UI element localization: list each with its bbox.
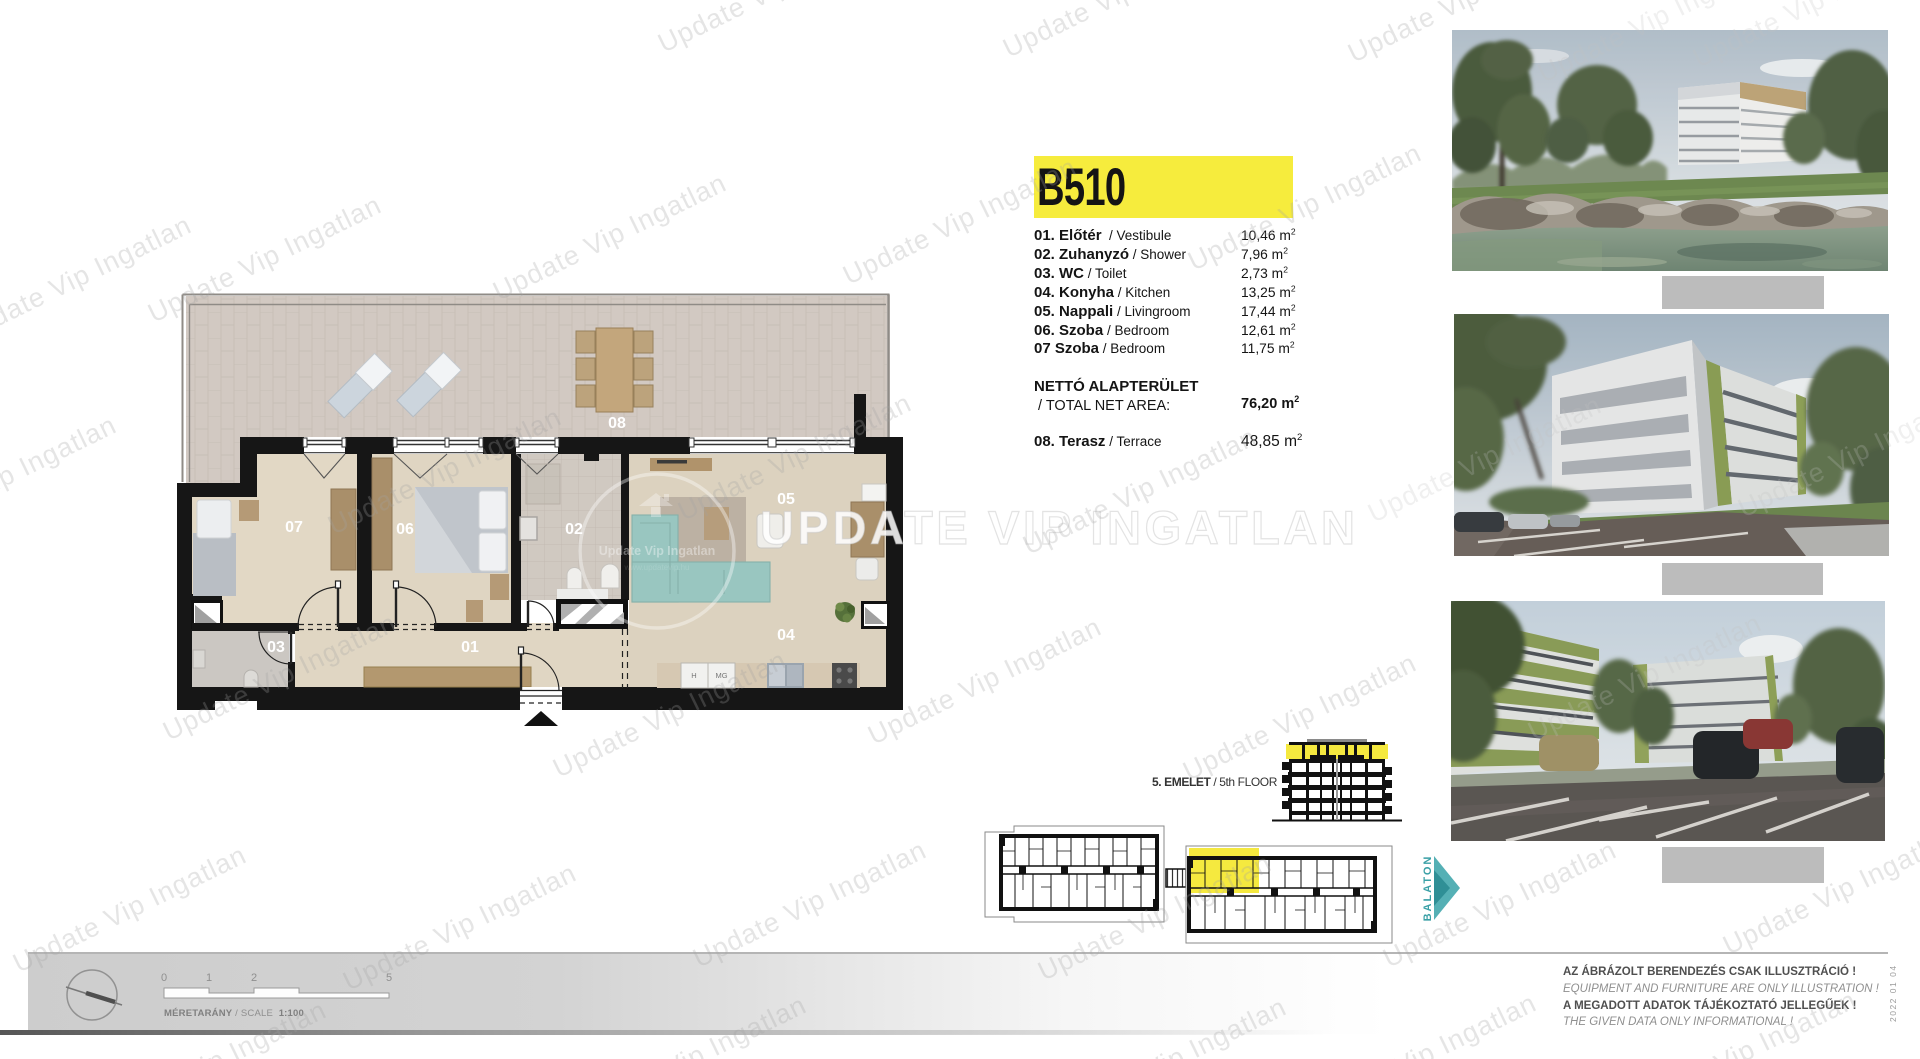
- svg-text:2: 2: [251, 972, 257, 984]
- svg-text:1: 1: [206, 972, 212, 984]
- svg-text:06: 06: [396, 521, 414, 538]
- svg-text:01: 01: [461, 639, 479, 656]
- svg-text:H: H: [691, 671, 696, 680]
- svg-text:04: 04: [777, 627, 795, 644]
- svg-text:www.updatevip.hu: www.updatevip.hu: [624, 563, 690, 572]
- svg-text:0: 0: [161, 972, 167, 984]
- svg-text:07: 07: [285, 519, 303, 536]
- svg-text:03: 03: [267, 639, 285, 656]
- svg-text:BALATON: BALATON: [1422, 855, 1434, 922]
- svg-text:08: 08: [608, 415, 626, 432]
- svg-text:Update Vip Ingatlan: Update Vip Ingatlan: [599, 544, 715, 558]
